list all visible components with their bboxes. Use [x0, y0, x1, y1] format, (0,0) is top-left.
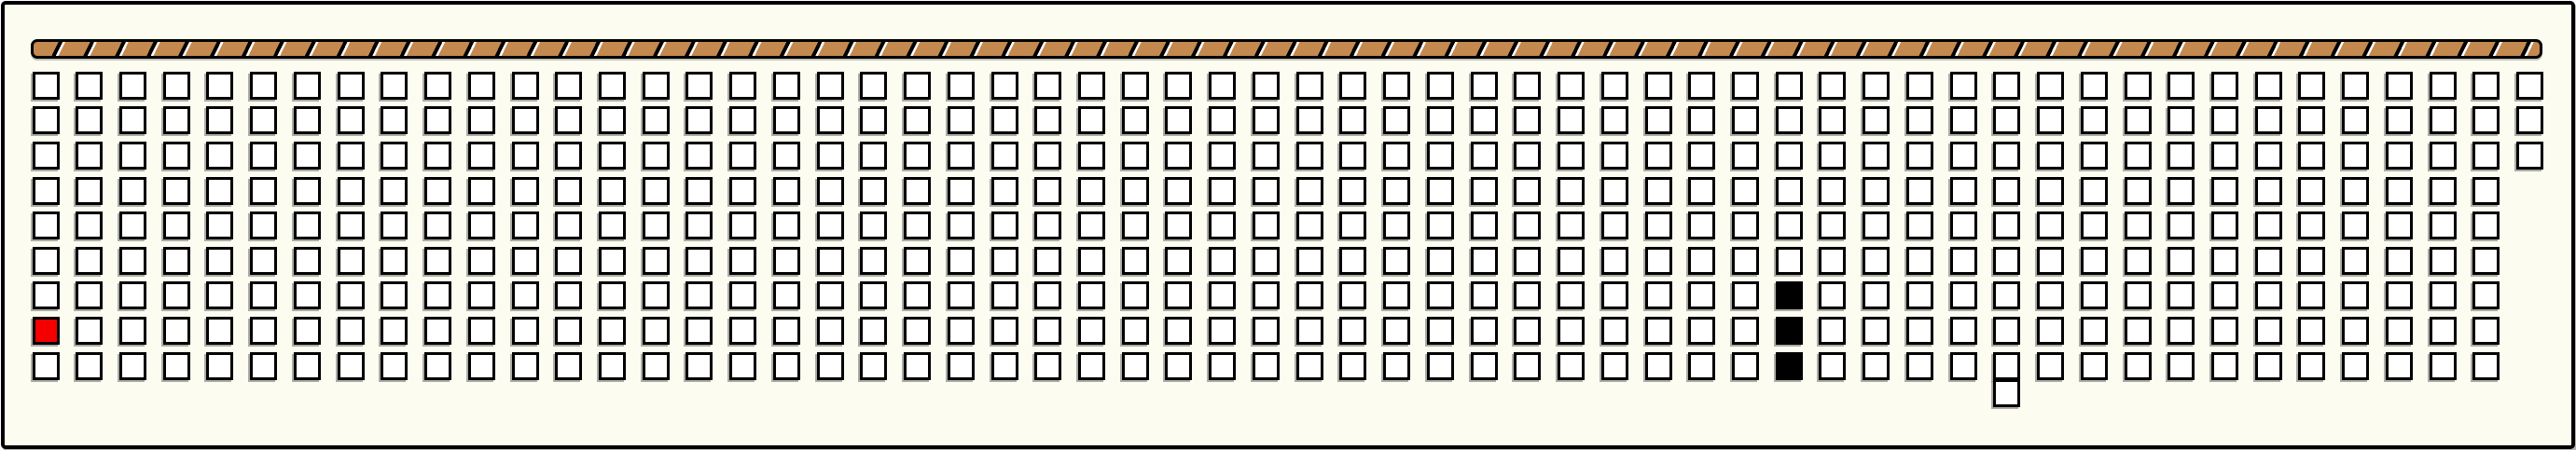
grid-square[interactable] [1078, 281, 1105, 309]
grid-square[interactable] [1950, 247, 1977, 275]
grid-square[interactable] [2472, 72, 2500, 100]
grid-square[interactable] [338, 106, 365, 134]
grid-square[interactable] [250, 247, 277, 275]
grid-square[interactable] [2037, 247, 2064, 275]
grid-square[interactable] [1950, 352, 1977, 380]
grid-square[interactable] [1776, 177, 1803, 205]
grid-square[interactable] [2298, 142, 2325, 170]
grid-square[interactable] [686, 106, 713, 134]
grid-square[interactable] [1645, 106, 1672, 134]
grid-square[interactable] [2516, 106, 2543, 134]
grid-square[interactable] [512, 72, 539, 100]
grid-square[interactable] [2167, 352, 2195, 380]
grid-square[interactable] [1427, 72, 1454, 100]
grid-square[interactable] [2298, 352, 2325, 380]
grid-square[interactable] [424, 317, 451, 345]
grid-square[interactable] [1776, 72, 1803, 100]
grid-square[interactable] [338, 247, 365, 275]
grid-square[interactable] [1471, 211, 1498, 239]
grid-square[interactable] [1209, 352, 1236, 380]
grid-square[interactable] [1122, 247, 1149, 275]
grid-square[interactable] [294, 352, 321, 380]
grid-square[interactable] [2386, 281, 2413, 309]
grid-square[interactable] [1732, 177, 1759, 205]
grid-square[interactable] [468, 352, 495, 380]
grid-square[interactable] [1383, 317, 1410, 345]
grid-square[interactable] [991, 352, 1018, 380]
grid-square[interactable] [294, 317, 321, 345]
grid-square[interactable] [1034, 317, 1061, 345]
grid-square[interactable] [729, 106, 756, 134]
grid-square[interactable] [2211, 352, 2238, 380]
grid-square[interactable] [1993, 142, 2020, 170]
grid-square[interactable] [2081, 142, 2108, 170]
grid-square[interactable] [860, 247, 887, 275]
grid-square[interactable] [512, 281, 539, 309]
grid-square[interactable] [1950, 317, 1977, 345]
grid-square[interactable] [2255, 247, 2282, 275]
grid-square[interactable] [2342, 142, 2369, 170]
grid-square[interactable] [729, 317, 756, 345]
grid-square[interactable] [1209, 281, 1236, 309]
grid-square[interactable] [119, 142, 146, 170]
grid-square[interactable] [76, 317, 103, 345]
grid-square[interactable] [2298, 281, 2325, 309]
grid-square[interactable] [468, 177, 495, 205]
grid-square[interactable] [512, 247, 539, 275]
grid-square[interactable] [1732, 317, 1759, 345]
grid-square[interactable] [424, 72, 451, 100]
grid-square[interactable] [599, 317, 626, 345]
grid-square[interactable] [1427, 211, 1454, 239]
grid-square[interactable] [2211, 72, 2238, 100]
grid-square[interactable] [729, 72, 756, 100]
grid-square[interactable] [555, 177, 582, 205]
grid-square[interactable] [1993, 211, 2020, 239]
grid-square[interactable] [643, 177, 670, 205]
grid-square[interactable] [1601, 281, 1628, 309]
grid-square[interactable] [512, 211, 539, 239]
grid-square[interactable] [1688, 247, 1715, 275]
grid-square[interactable] [1122, 142, 1149, 170]
grid-square[interactable] [2516, 142, 2543, 170]
grid-square[interactable] [1993, 281, 2020, 309]
grid-square[interactable] [860, 106, 887, 134]
grid-square[interactable] [250, 177, 277, 205]
grid-square[interactable] [1906, 211, 1933, 239]
grid-square[interactable] [2342, 317, 2369, 345]
grid-square[interactable] [2167, 177, 2195, 205]
grid-square[interactable] [860, 72, 887, 100]
grid-square[interactable] [119, 317, 146, 345]
grid-square[interactable] [991, 247, 1018, 275]
grid-square[interactable] [1732, 281, 1759, 309]
grid-square[interactable] [1165, 177, 1192, 205]
grid-square[interactable] [1122, 177, 1149, 205]
grid-square[interactable] [1601, 247, 1628, 275]
grid-square[interactable] [1296, 317, 1323, 345]
grid-square[interactable] [2081, 211, 2108, 239]
grid-square[interactable] [860, 177, 887, 205]
grid-square[interactable] [468, 72, 495, 100]
grid-square[interactable] [1776, 142, 1803, 170]
grid-square[interactable] [1688, 106, 1715, 134]
grid-square[interactable] [1165, 142, 1192, 170]
grid-square[interactable] [1339, 352, 1366, 380]
grid-square[interactable] [1122, 281, 1149, 309]
grid-square[interactable] [1688, 317, 1715, 345]
grid-square[interactable] [206, 317, 233, 345]
black-square[interactable] [1776, 352, 1803, 380]
grid-square[interactable] [599, 247, 626, 275]
grid-square[interactable] [2386, 106, 2413, 134]
grid-square[interactable] [2125, 142, 2152, 170]
grid-square[interactable] [599, 281, 626, 309]
grid-square[interactable] [2430, 352, 2457, 380]
grid-square[interactable] [1383, 211, 1410, 239]
grid-square[interactable] [1078, 247, 1105, 275]
grid-square[interactable] [773, 142, 800, 170]
grid-square[interactable] [1558, 177, 1585, 205]
grid-square[interactable] [1427, 247, 1454, 275]
grid-square[interactable] [1906, 72, 1933, 100]
grid-square[interactable] [1863, 281, 1890, 309]
grid-square[interactable] [599, 211, 626, 239]
grid-square[interactable] [1863, 142, 1890, 170]
grid-square[interactable] [555, 72, 582, 100]
grid-square[interactable] [1950, 177, 1977, 205]
grid-square[interactable] [817, 247, 844, 275]
grid-square[interactable] [948, 281, 975, 309]
grid-square[interactable] [2386, 142, 2413, 170]
grid-square[interactable] [1078, 352, 1105, 380]
grid-square[interactable] [904, 72, 931, 100]
grid-square[interactable] [33, 211, 60, 239]
grid-square[interactable] [1732, 106, 1759, 134]
grid-square[interactable] [729, 177, 756, 205]
grid-square[interactable] [1950, 72, 1977, 100]
red-square[interactable] [33, 317, 60, 345]
grid-square[interactable] [294, 247, 321, 275]
grid-square[interactable] [1993, 247, 2020, 275]
grid-square[interactable] [1601, 211, 1628, 239]
grid-square[interactable] [1732, 72, 1759, 100]
grid-square[interactable] [1558, 317, 1585, 345]
grid-square[interactable] [904, 177, 931, 205]
grid-square[interactable] [1819, 177, 1846, 205]
grid-square[interactable] [2430, 177, 2457, 205]
grid-square[interactable] [294, 106, 321, 134]
grid-square[interactable] [2255, 211, 2282, 239]
grid-square[interactable] [1906, 142, 1933, 170]
grid-square[interactable] [2472, 352, 2500, 380]
grid-square[interactable] [1427, 281, 1454, 309]
grid-square[interactable] [860, 142, 887, 170]
grid-square[interactable] [904, 317, 931, 345]
grid-square[interactable] [1122, 211, 1149, 239]
grid-square[interactable] [817, 211, 844, 239]
grid-square[interactable] [338, 352, 365, 380]
grid-square[interactable] [2081, 247, 2108, 275]
grid-square[interactable] [643, 281, 670, 309]
grid-square[interactable] [1253, 247, 1280, 275]
grid-square[interactable] [2386, 317, 2413, 345]
grid-square[interactable] [1558, 72, 1585, 100]
grid-square[interactable] [1645, 281, 1672, 309]
grid-square[interactable] [1514, 281, 1541, 309]
grid-square[interactable] [1122, 317, 1149, 345]
grid-square[interactable] [1253, 177, 1280, 205]
grid-square[interactable] [1645, 177, 1672, 205]
grid-square[interactable] [1078, 317, 1105, 345]
grid-square[interactable] [1034, 72, 1061, 100]
grid-square[interactable] [1471, 177, 1498, 205]
grid-square[interactable] [1645, 317, 1672, 345]
grid-square[interactable] [1078, 142, 1105, 170]
grid-square[interactable] [2167, 317, 2195, 345]
grid-square[interactable] [2472, 211, 2500, 239]
grid-square[interactable] [424, 106, 451, 134]
grid-square[interactable] [1688, 72, 1715, 100]
grid-square[interactable] [643, 142, 670, 170]
grid-square[interactable] [1558, 211, 1585, 239]
grid-square[interactable] [338, 317, 365, 345]
grid-square[interactable] [119, 72, 146, 100]
grid-square[interactable] [555, 247, 582, 275]
grid-square[interactable] [2298, 211, 2325, 239]
grid-square[interactable] [817, 281, 844, 309]
grid-square[interactable] [1296, 106, 1323, 134]
grid-square[interactable] [860, 352, 887, 380]
grid-square[interactable] [33, 72, 60, 100]
grid-square[interactable] [250, 352, 277, 380]
grid-square[interactable] [1427, 142, 1454, 170]
grid-square[interactable] [206, 177, 233, 205]
grid-square[interactable] [1601, 106, 1628, 134]
grid-square[interactable] [1471, 247, 1498, 275]
grid-square[interactable] [1122, 72, 1149, 100]
grid-square[interactable] [904, 142, 931, 170]
grid-square[interactable] [294, 177, 321, 205]
grid-square[interactable] [2386, 177, 2413, 205]
detached-square[interactable] [1993, 379, 2020, 407]
grid-square[interactable] [1034, 177, 1061, 205]
grid-square[interactable] [948, 317, 975, 345]
grid-square[interactable] [512, 142, 539, 170]
grid-square[interactable] [2298, 317, 2325, 345]
grid-square[interactable] [686, 247, 713, 275]
grid-square[interactable] [381, 247, 408, 275]
grid-square[interactable] [2125, 247, 2152, 275]
grid-square[interactable] [1078, 106, 1105, 134]
grid-square[interactable] [1253, 72, 1280, 100]
grid-square[interactable] [76, 211, 103, 239]
grid-square[interactable] [2472, 177, 2500, 205]
grid-square[interactable] [2167, 106, 2195, 134]
grid-square[interactable] [76, 352, 103, 380]
grid-square[interactable] [1776, 106, 1803, 134]
grid-square[interactable] [163, 177, 190, 205]
grid-square[interactable] [729, 142, 756, 170]
grid-square[interactable] [686, 211, 713, 239]
grid-square[interactable] [76, 247, 103, 275]
grid-square[interactable] [1863, 72, 1890, 100]
grid-square[interactable] [1819, 72, 1846, 100]
grid-square[interactable] [381, 281, 408, 309]
grid-square[interactable] [1993, 177, 2020, 205]
grid-square[interactable] [119, 281, 146, 309]
grid-square[interactable] [773, 211, 800, 239]
grid-square[interactable] [512, 317, 539, 345]
grid-square[interactable] [904, 281, 931, 309]
grid-square[interactable] [2386, 247, 2413, 275]
grid-square[interactable] [686, 352, 713, 380]
grid-square[interactable] [904, 211, 931, 239]
grid-square[interactable] [1034, 142, 1061, 170]
grid-square[interactable] [2255, 142, 2282, 170]
grid-square[interactable] [424, 142, 451, 170]
grid-square[interactable] [1906, 177, 1933, 205]
grid-square[interactable] [2081, 352, 2108, 380]
grid-square[interactable] [2430, 142, 2457, 170]
grid-square[interactable] [1950, 142, 1977, 170]
grid-square[interactable] [1296, 177, 1323, 205]
grid-square[interactable] [948, 247, 975, 275]
grid-square[interactable] [163, 317, 190, 345]
grid-square[interactable] [904, 106, 931, 134]
grid-square[interactable] [206, 352, 233, 380]
grid-square[interactable] [468, 106, 495, 134]
grid-square[interactable] [1034, 247, 1061, 275]
grid-square[interactable] [2211, 281, 2238, 309]
grid-square[interactable] [1514, 317, 1541, 345]
grid-square[interactable] [555, 317, 582, 345]
grid-square[interactable] [948, 177, 975, 205]
grid-square[interactable] [338, 281, 365, 309]
grid-square[interactable] [1819, 317, 1846, 345]
grid-square[interactable] [338, 142, 365, 170]
grid-square[interactable] [2211, 177, 2238, 205]
grid-square[interactable] [729, 211, 756, 239]
grid-square[interactable] [2386, 72, 2413, 100]
grid-square[interactable] [1427, 317, 1454, 345]
grid-square[interactable] [1165, 317, 1192, 345]
grid-square[interactable] [1906, 247, 1933, 275]
grid-square[interactable] [468, 317, 495, 345]
grid-square[interactable] [33, 352, 60, 380]
grid-square[interactable] [2342, 211, 2369, 239]
grid-square[interactable] [1383, 72, 1410, 100]
grid-square[interactable] [2430, 281, 2457, 309]
grid-square[interactable] [206, 247, 233, 275]
grid-square[interactable] [1383, 352, 1410, 380]
grid-square[interactable] [1863, 352, 1890, 380]
grid-square[interactable] [2342, 72, 2369, 100]
grid-square[interactable] [1383, 247, 1410, 275]
grid-square[interactable] [2430, 247, 2457, 275]
grid-square[interactable] [163, 352, 190, 380]
grid-square[interactable] [1253, 142, 1280, 170]
grid-square[interactable] [1688, 281, 1715, 309]
grid-square[interactable] [1558, 106, 1585, 134]
grid-square[interactable] [1078, 211, 1105, 239]
grid-square[interactable] [119, 177, 146, 205]
grid-square[interactable] [338, 72, 365, 100]
grid-square[interactable] [33, 177, 60, 205]
grid-square[interactable] [1209, 142, 1236, 170]
grid-square[interactable] [948, 211, 975, 239]
grid-square[interactable] [294, 211, 321, 239]
grid-square[interactable] [1688, 211, 1715, 239]
grid-square[interactable] [424, 281, 451, 309]
grid-square[interactable] [1122, 352, 1149, 380]
grid-square[interactable] [991, 317, 1018, 345]
grid-square[interactable] [686, 317, 713, 345]
grid-square[interactable] [2167, 142, 2195, 170]
grid-square[interactable] [1339, 247, 1366, 275]
grid-square[interactable] [381, 317, 408, 345]
grid-square[interactable] [991, 72, 1018, 100]
grid-square[interactable] [1645, 211, 1672, 239]
grid-square[interactable] [2037, 281, 2064, 309]
grid-square[interactable] [2037, 72, 2064, 100]
grid-square[interactable] [2472, 142, 2500, 170]
grid-square[interactable] [948, 106, 975, 134]
grid-square[interactable] [381, 106, 408, 134]
grid-square[interactable] [860, 317, 887, 345]
grid-square[interactable] [2037, 177, 2064, 205]
grid-square[interactable] [1296, 281, 1323, 309]
grid-square[interactable] [2472, 247, 2500, 275]
grid-square[interactable] [1034, 352, 1061, 380]
grid-square[interactable] [119, 106, 146, 134]
grid-square[interactable] [686, 177, 713, 205]
grid-square[interactable] [1339, 106, 1366, 134]
grid-square[interactable] [2342, 177, 2369, 205]
grid-square[interactable] [1253, 352, 1280, 380]
grid-square[interactable] [206, 211, 233, 239]
grid-square[interactable] [686, 142, 713, 170]
grid-square[interactable] [643, 352, 670, 380]
grid-square[interactable] [1339, 142, 1366, 170]
grid-square[interactable] [1514, 142, 1541, 170]
grid-square[interactable] [381, 177, 408, 205]
grid-square[interactable] [338, 211, 365, 239]
grid-square[interactable] [729, 352, 756, 380]
grid-square[interactable] [2037, 106, 2064, 134]
black-square[interactable] [1776, 281, 1803, 309]
grid-square[interactable] [512, 177, 539, 205]
grid-square[interactable] [948, 352, 975, 380]
grid-square[interactable] [1383, 106, 1410, 134]
grid-square[interactable] [599, 72, 626, 100]
grid-square[interactable] [163, 72, 190, 100]
grid-square[interactable] [1950, 281, 1977, 309]
grid-square[interactable] [2167, 211, 2195, 239]
grid-square[interactable] [991, 281, 1018, 309]
grid-square[interactable] [1645, 142, 1672, 170]
grid-square[interactable] [1950, 211, 1977, 239]
grid-square[interactable] [250, 281, 277, 309]
grid-square[interactable] [1601, 317, 1628, 345]
grid-square[interactable] [2430, 72, 2457, 100]
grid-square[interactable] [643, 317, 670, 345]
grid-square[interactable] [555, 142, 582, 170]
grid-square[interactable] [2125, 317, 2152, 345]
grid-square[interactable] [250, 72, 277, 100]
grid-square[interactable] [555, 352, 582, 380]
grid-square[interactable] [1078, 177, 1105, 205]
